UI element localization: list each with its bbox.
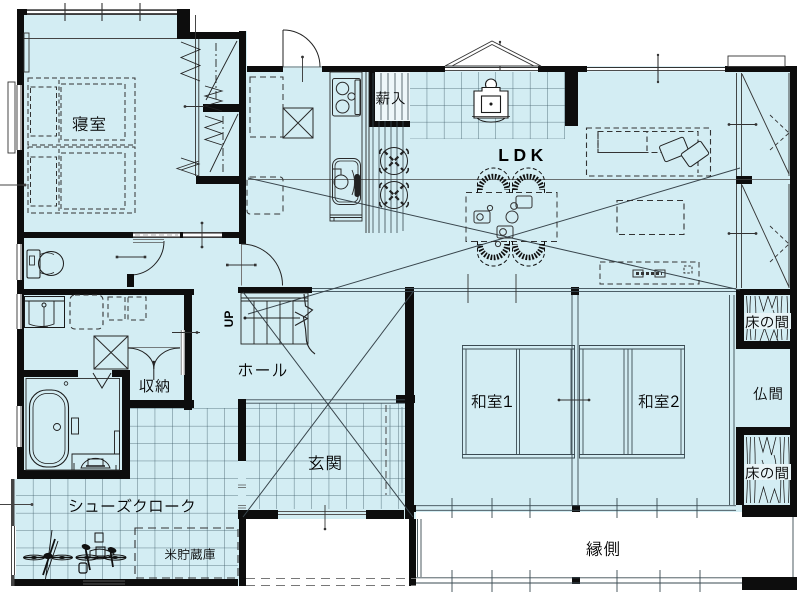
svg-text:UP: UP (222, 311, 236, 328)
svg-text:LDK: LDK (498, 145, 547, 165)
